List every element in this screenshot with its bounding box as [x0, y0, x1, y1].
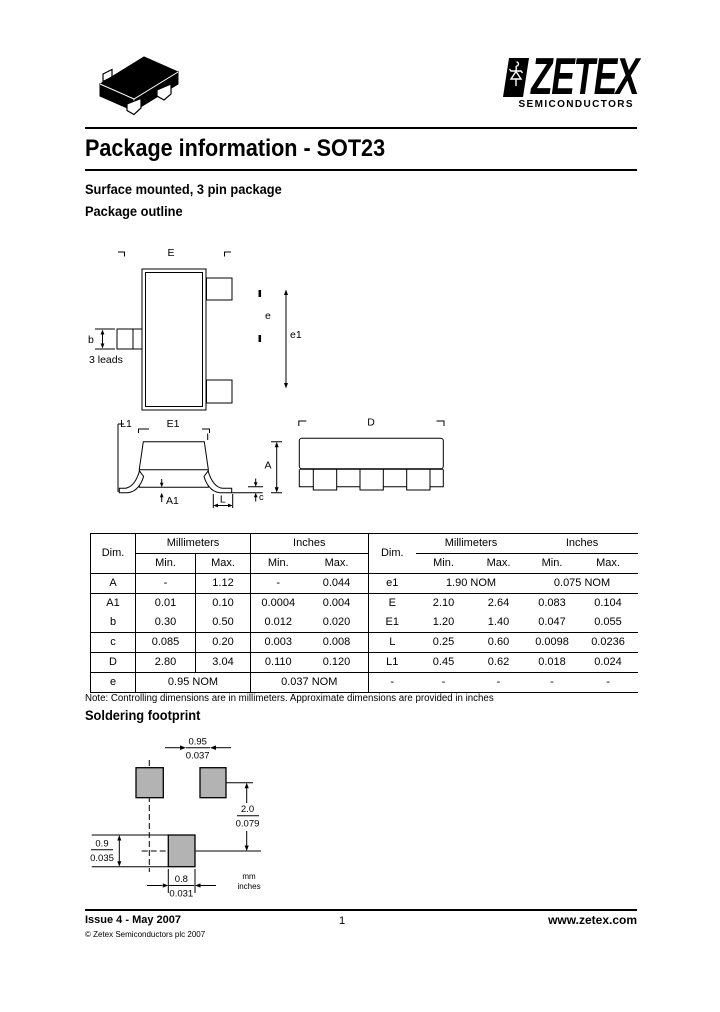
col-header-millimeters: Millimeters	[416, 534, 526, 554]
website-text: www.zetex.com	[500, 913, 637, 927]
value-cell: 0.95 NOM	[136, 673, 251, 693]
value-cell: 1.90 NOM	[416, 574, 526, 594]
value-cell: 0.60	[471, 633, 526, 653]
dim-label-A: A	[264, 460, 271, 472]
col-header-millimeters: Millimeters	[136, 534, 251, 554]
footer-copyright: © Zetex Semiconductors plc 2007	[85, 930, 205, 939]
table-row: c 0.085 0.20 0.003 0.008	[91, 633, 368, 653]
value-cell: 0.50	[196, 613, 251, 633]
pad-height-value-in: 0.035	[90, 853, 114, 864]
value-cell: -	[136, 574, 196, 594]
value-cell: 2.80	[136, 653, 196, 673]
dim-cell: E1	[368, 613, 416, 633]
footprint-pad-top-left	[136, 768, 163, 798]
dim-label-e1: e1	[290, 329, 302, 341]
col-header-inches: Inches	[526, 534, 638, 554]
dimension-tables: Dim. Millimeters Inches Min. Max. Min. M…	[90, 533, 638, 693]
col-header-max: Max.	[196, 554, 251, 574]
value-cell: 0.01	[136, 594, 196, 614]
title-rule-bottom	[85, 169, 637, 171]
value-cell: 0.003	[251, 633, 306, 653]
value-cell: 0.25	[416, 633, 471, 653]
side-view	[298, 421, 444, 490]
table-note: Note: Controlling dimensions are in mill…	[85, 693, 494, 704]
pitch-value-mm: 0.95	[188, 737, 207, 748]
col-header-max: Max.	[471, 554, 526, 574]
value-cell: 0.0236	[578, 633, 638, 653]
table-row: L 0.25 0.60 0.0098 0.0236	[368, 633, 638, 653]
col-header-min: Min.	[526, 554, 578, 574]
pad-height-value-mm: 0.9	[95, 839, 108, 850]
dimension-table-left: Dim. Millimeters Inches Min. Max. Min. M…	[90, 533, 368, 693]
value-cell: 0.055	[578, 613, 638, 633]
value-cell: 0.45	[416, 653, 471, 673]
value-cell: -	[526, 673, 578, 693]
col-header-min: Min.	[416, 554, 471, 574]
dim-cell: D	[91, 653, 136, 673]
leads-count-label: 3 leads	[89, 354, 123, 366]
dim-label-c: c	[259, 492, 264, 503]
footprint-dimension-lines	[91, 748, 259, 893]
brand-wordmark: ZETEX	[531, 57, 638, 97]
value-cell: 0.110	[251, 653, 306, 673]
page-number: 1	[330, 915, 354, 927]
soldering-footprint-diagram: 0.95 0.037 2.0 0.079 0.9 0.035 0.8 0.031…	[85, 730, 285, 908]
value-cell: 0.083	[526, 594, 578, 614]
table-row: D 2.80 3.04 0.110 0.120	[91, 653, 368, 673]
value-cell: 0.008	[306, 633, 368, 653]
pad-width-value-mm: 0.8	[175, 874, 188, 885]
col-header-min: Min.	[251, 554, 306, 574]
dim-cell: L	[368, 633, 416, 653]
value-cell: 1.12	[196, 574, 251, 594]
value-cell: 1.20	[416, 613, 471, 633]
value-cell: 2.64	[471, 594, 526, 614]
top-view	[95, 252, 288, 410]
value-cell: 0.018	[526, 653, 578, 673]
footprint-pad-top-right	[200, 768, 226, 798]
col-header-min: Min.	[136, 554, 196, 574]
col-header-inches: Inches	[251, 534, 368, 554]
dim-cell: b	[91, 613, 136, 633]
dim-label-A1: A1	[166, 495, 179, 507]
col-header-dim: Dim.	[91, 534, 136, 574]
diode-icon	[503, 58, 529, 97]
dimension-table-right: Dim. Millimeters Inches Min. Max. Min. M…	[368, 533, 639, 693]
value-cell: 2.10	[416, 594, 471, 614]
height-value-in: 0.079	[236, 819, 260, 830]
package-outline-diagram: E b 3 leads e e1 L1 E1 A A1 L c D	[85, 235, 465, 530]
value-cell: 0.104	[578, 594, 638, 614]
footprint-pad-bottom	[168, 835, 195, 867]
dim-cell: E	[368, 594, 416, 614]
value-cell: 3.04	[196, 653, 251, 673]
value-cell: 0.037 NOM	[251, 673, 368, 693]
sot23-package-illustration	[84, 44, 204, 122]
value-cell: 0.62	[471, 653, 526, 673]
value-cell: 0.024	[578, 653, 638, 673]
units-label-inches: inches	[237, 882, 260, 891]
dim-label-b: b	[88, 334, 94, 346]
dim-cell: A1	[91, 594, 136, 614]
value-cell: 0.10	[196, 594, 251, 614]
col-header-max: Max.	[578, 554, 638, 574]
value-cell: -	[578, 673, 638, 693]
dim-cell: -	[368, 673, 416, 693]
table-row: E1 1.20 1.40 0.047 0.055	[368, 613, 638, 633]
dim-cell: e	[91, 673, 136, 693]
value-cell: 0.075 NOM	[526, 574, 638, 594]
dim-cell: e1	[368, 574, 416, 594]
pad-width-value-in: 0.031	[169, 889, 193, 900]
dim-label-L: L	[220, 494, 226, 506]
dim-label-E: E	[167, 247, 174, 259]
footer-issue: Issue 4 - May 2007	[85, 914, 181, 926]
footprint-heading: Soldering footprint	[85, 708, 200, 723]
page-title: Package information - SOT23	[85, 135, 385, 163]
subtitle: Surface mounted, 3 pin package	[85, 182, 282, 197]
brand-tagline: SEMICONDUCTORS	[503, 99, 634, 110]
value-cell: -	[416, 673, 471, 693]
footer-rule	[85, 909, 637, 911]
value-cell: 0.012	[251, 613, 306, 633]
value-cell: 0.30	[136, 613, 196, 633]
dim-label-E1: E1	[167, 418, 180, 430]
value-cell: 0.020	[306, 613, 368, 633]
outline-heading: Package outline	[85, 204, 183, 219]
dim-cell: L1	[368, 653, 416, 673]
front-view	[118, 424, 282, 508]
table-row: L1 0.45 0.62 0.018 0.024	[368, 653, 638, 673]
table-row: A - 1.12 - 0.044	[91, 574, 368, 594]
dim-cell: A	[91, 574, 136, 594]
value-cell: 0.047	[526, 613, 578, 633]
value-cell: 0.0098	[526, 633, 578, 653]
table-row: e1 1.90 NOM 0.075 NOM	[368, 574, 638, 594]
value-cell: 0.085	[136, 633, 196, 653]
dim-cell: c	[91, 633, 136, 653]
dim-label-L1: L1	[120, 418, 132, 430]
table-row: - - - - -	[368, 673, 638, 693]
value-cell: 0.0004	[251, 594, 306, 614]
value-cell: 1.40	[471, 613, 526, 633]
pitch-value-in: 0.037	[186, 751, 210, 762]
table-row: E 2.10 2.64 0.083 0.104	[368, 594, 638, 614]
col-header-max: Max.	[306, 554, 368, 574]
title-rule-top	[85, 127, 637, 129]
table-row: b 0.30 0.50 0.012 0.020	[91, 613, 368, 633]
value-cell: -	[251, 574, 306, 594]
datasheet-page: { "logo": { "brand": "ZETEX", "tagline":…	[0, 0, 720, 1012]
value-cell: 0.044	[306, 574, 368, 594]
value-cell: 0.20	[196, 633, 251, 653]
value-cell: 0.120	[306, 653, 368, 673]
value-cell: -	[471, 673, 526, 693]
height-value-mm: 2.0	[241, 804, 254, 815]
table-row: e 0.95 NOM 0.037 NOM	[91, 673, 368, 693]
units-label-mm: mm	[242, 872, 256, 881]
dim-label-e: e	[265, 310, 271, 322]
col-header-dim: Dim.	[368, 534, 416, 574]
table-row: A1 0.01 0.10 0.0004 0.004	[91, 594, 368, 614]
dim-label-D: D	[367, 417, 375, 429]
value-cell: 0.004	[306, 594, 368, 614]
